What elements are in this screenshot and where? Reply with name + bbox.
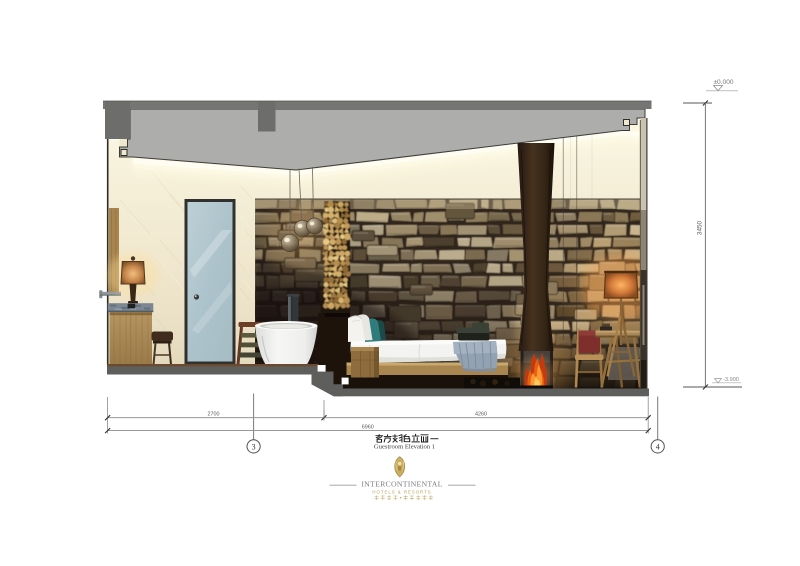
svg-text:4: 4 — [656, 443, 660, 452]
svg-text:3: 3 — [252, 443, 256, 452]
svg-text:2700: 2700 — [208, 411, 220, 417]
svg-text:±0.000: ±0.000 — [713, 79, 733, 86]
svg-text:HOTELS & RESORTS: HOTELS & RESORTS — [372, 489, 431, 494]
svg-text:3450: 3450 — [697, 220, 704, 235]
svg-text:-3.900: -3.900 — [723, 377, 739, 383]
svg-text:INTERCONTINENTAL: INTERCONTINENTAL — [361, 479, 442, 488]
svg-text:4260: 4260 — [475, 411, 487, 417]
svg-text:Guestroom Elevation 1: Guestroom Elevation 1 — [374, 444, 435, 451]
svg-text:6960: 6960 — [362, 424, 374, 430]
